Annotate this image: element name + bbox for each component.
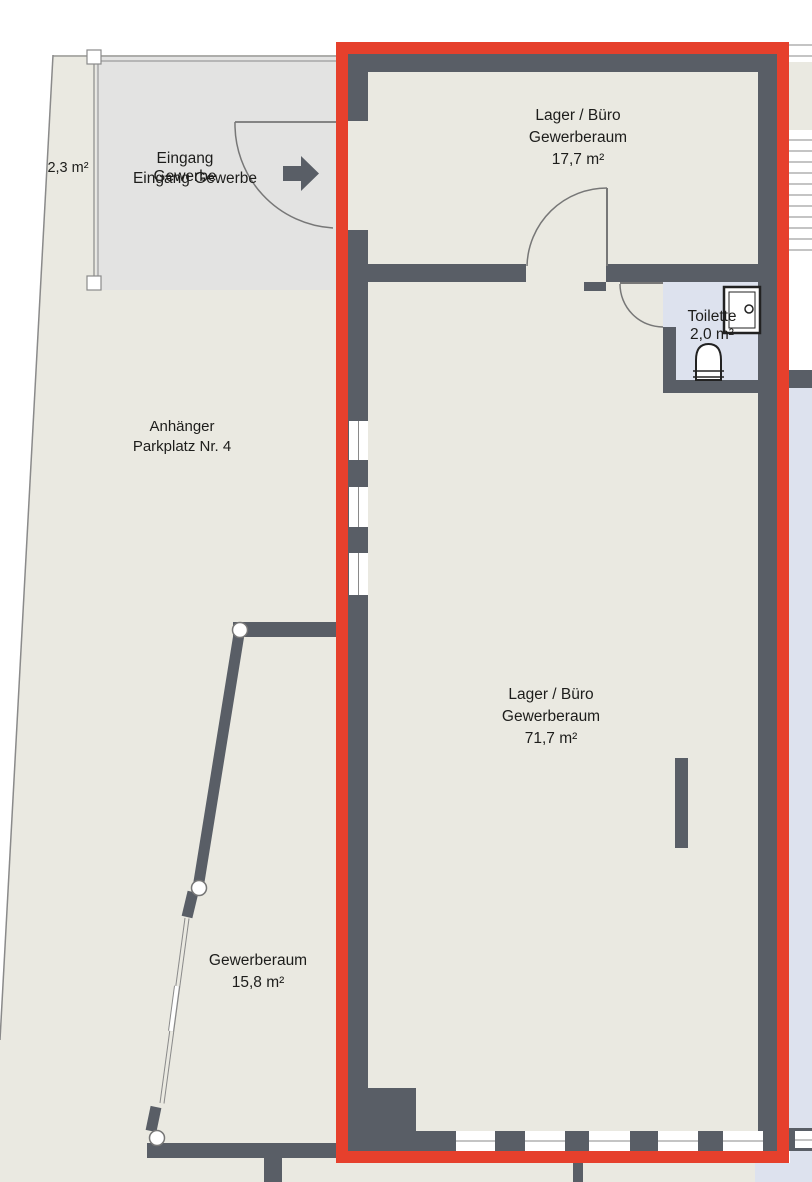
- room-top-label: Lager / Büro Gewerberaum 17,7 m²: [498, 105, 658, 171]
- door-stop-stub: [584, 282, 606, 291]
- wall-post-marker: [192, 881, 207, 896]
- room-main-label-line1: Lager / Büro: [471, 684, 631, 706]
- room-main-label-line3: 71,7 m²: [471, 728, 631, 750]
- wall-stub: [264, 1158, 282, 1182]
- room-small-label: Gewerberaum 15,8 m²: [178, 950, 338, 994]
- toilet-label-line2: 2,0 m²: [657, 326, 767, 344]
- entrance-label-overlay-text: Eingang Gewerbe: [113, 168, 277, 190]
- toilet-bowl-icon: [696, 344, 721, 380]
- entrance-post-top: [87, 50, 101, 64]
- corner-wall-block: [348, 1088, 416, 1151]
- entrance-label-overlay: Eingang Gewerbe: [113, 168, 277, 190]
- toilet-bottom-wall: [663, 380, 758, 393]
- divider-wall: [368, 264, 526, 282]
- area-label-2-3: 2,3 m²: [36, 157, 100, 179]
- room-small-label-line2: 15,8 m²: [178, 972, 338, 994]
- unit-right-wall: [758, 54, 778, 1151]
- parking-label-line2: Parkplatz Nr. 4: [102, 437, 262, 457]
- room-main-label: Lager / Büro Gewerberaum 71,7 m²: [471, 684, 631, 750]
- neighbour-floor-bottom: [755, 1163, 812, 1182]
- landing-area: [789, 62, 812, 130]
- floorplan-page: { "colors": { "wall": "#595e66", "red": …: [0, 0, 812, 1182]
- wall-stub-below-outline: [573, 1163, 583, 1182]
- room-small-label-line1: Gewerberaum: [178, 950, 338, 972]
- neighbour-floor: [790, 1151, 812, 1163]
- parking-label: Anhänger Parkplatz Nr. 4: [102, 417, 262, 457]
- entrance-post-bottom: [87, 276, 101, 290]
- parking-label-line1: Anhänger: [102, 417, 262, 437]
- toilet-label: Toilette 2,0 m²: [657, 308, 767, 344]
- entrance-door-opening: [348, 121, 368, 230]
- wall-post-marker: [150, 1131, 165, 1146]
- small-room-bottom-wall: [147, 1143, 343, 1158]
- divider-wall: [606, 264, 758, 282]
- room-main-label-line2: Gewerberaum: [471, 706, 631, 728]
- neighbour-floor: [789, 388, 812, 1128]
- small-room-wall-segment: [187, 892, 193, 917]
- entrance-label-line1: Eingang: [135, 150, 235, 168]
- area-label-2-3-text: 2,3 m²: [36, 157, 100, 179]
- room-top-label-line3: 17,7 m²: [498, 149, 658, 171]
- toilet-label-line1: Toilette: [657, 308, 767, 326]
- room-top-label-line2: Gewerberaum: [498, 127, 658, 149]
- small-room-wall-segment: [151, 1107, 156, 1131]
- wall-post-marker: [233, 623, 248, 638]
- room-top-label-line1: Lager / Büro: [498, 105, 658, 127]
- column-pillar: [675, 758, 688, 848]
- left-wall-windows: [349, 421, 368, 595]
- small-room-top-wall: [233, 622, 345, 637]
- unit-top-wall: [348, 54, 778, 72]
